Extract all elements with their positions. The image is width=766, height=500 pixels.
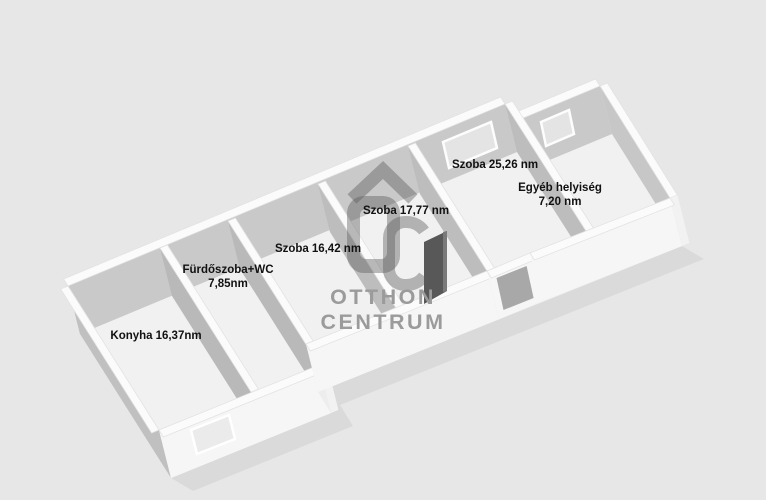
room-label-szoba-1: Szoba16,42 nm: [275, 243, 361, 257]
room-area: 7,85nm: [182, 278, 273, 292]
room-label-furdoszoba-wc: Fürdőszoba+WC7,85nm: [182, 264, 273, 292]
room-area: 17,77 nm: [400, 205, 449, 217]
room-name: Fürdőszoba+WC: [182, 264, 273, 276]
watermark-brand-line2: CENTRUM: [321, 310, 446, 334]
room-label-konyha: Konyha16,37nm: [110, 330, 201, 344]
room-name: Szoba: [275, 243, 309, 255]
room-name: Szoba: [363, 205, 397, 217]
room-name: Szoba: [452, 159, 486, 171]
watermark-brand-line1: OTTHON: [330, 285, 436, 309]
room-area: 7,20 nm: [518, 196, 602, 210]
floor-plan-image: OTTHON CENTRUM Konyha16,37nm Fürdőszoba+…: [0, 0, 766, 500]
room-name: Egyéb helyiség: [518, 182, 602, 194]
room-area: 16,42 nm: [312, 243, 361, 255]
room-label-szoba-2: Szoba17,77 nm: [363, 205, 449, 219]
room-area: 16,37nm: [156, 330, 202, 342]
room-area: 25,26 nm: [489, 159, 538, 171]
room-name: Konyha: [110, 330, 152, 342]
room-label-egyeb-helyiseg: Egyéb helyiség7,20 nm: [518, 182, 602, 210]
floor-plan-render: OTTHON CENTRUM: [0, 0, 766, 500]
room-label-szoba-3: Szoba25,26 nm: [452, 159, 538, 173]
